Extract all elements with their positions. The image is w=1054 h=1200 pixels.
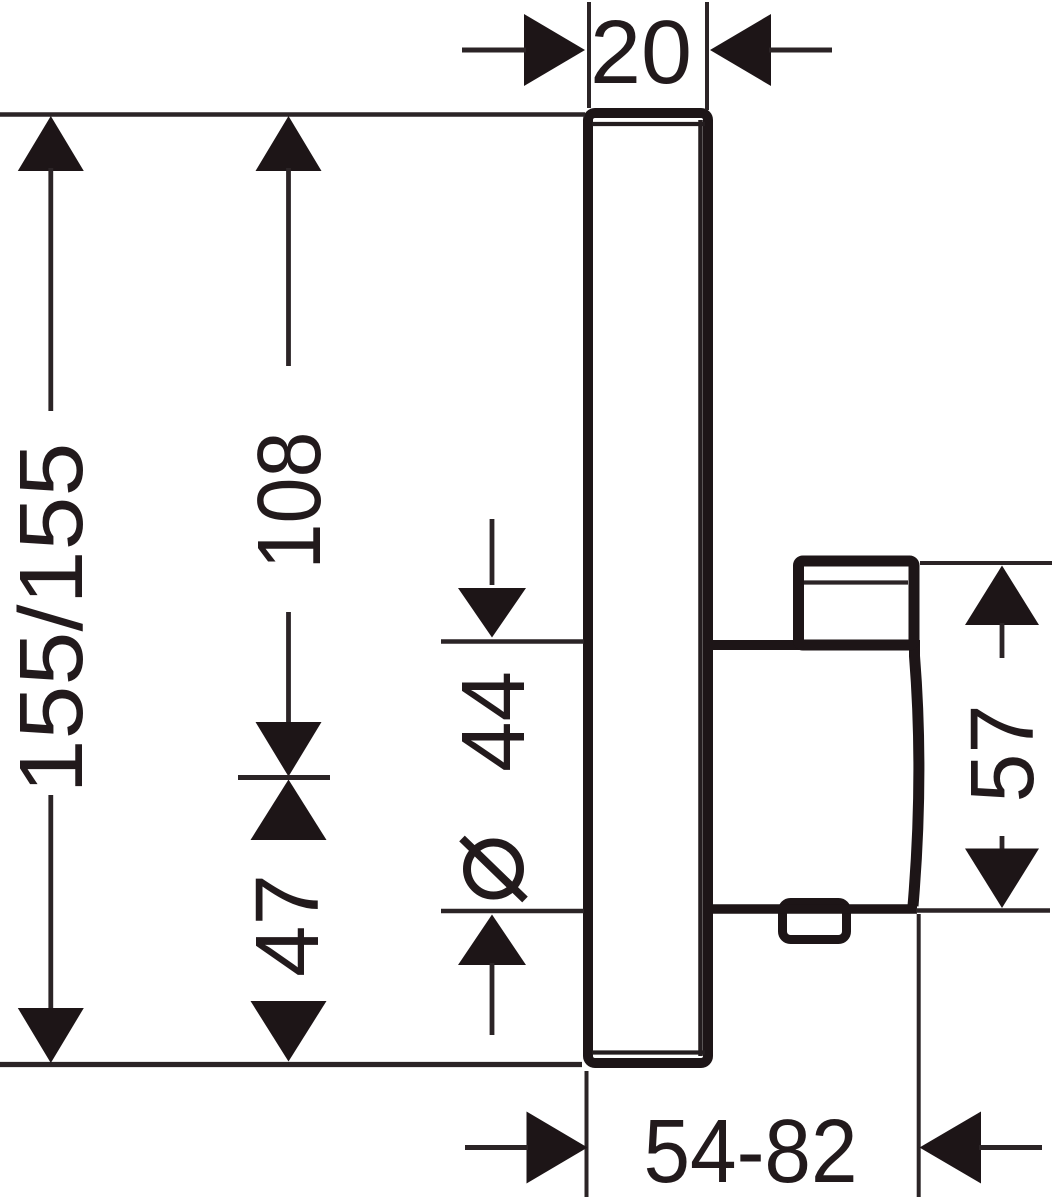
svg-text:47: 47	[238, 874, 338, 977]
svg-text:155/155: 155/155	[2, 443, 102, 794]
svg-text:20: 20	[590, 3, 692, 103]
svg-text:44: 44	[444, 671, 544, 772]
svg-text:57: 57	[953, 705, 1053, 803]
svg-text:54-82: 54-82	[644, 1102, 858, 1200]
svg-text:108: 108	[240, 432, 340, 570]
